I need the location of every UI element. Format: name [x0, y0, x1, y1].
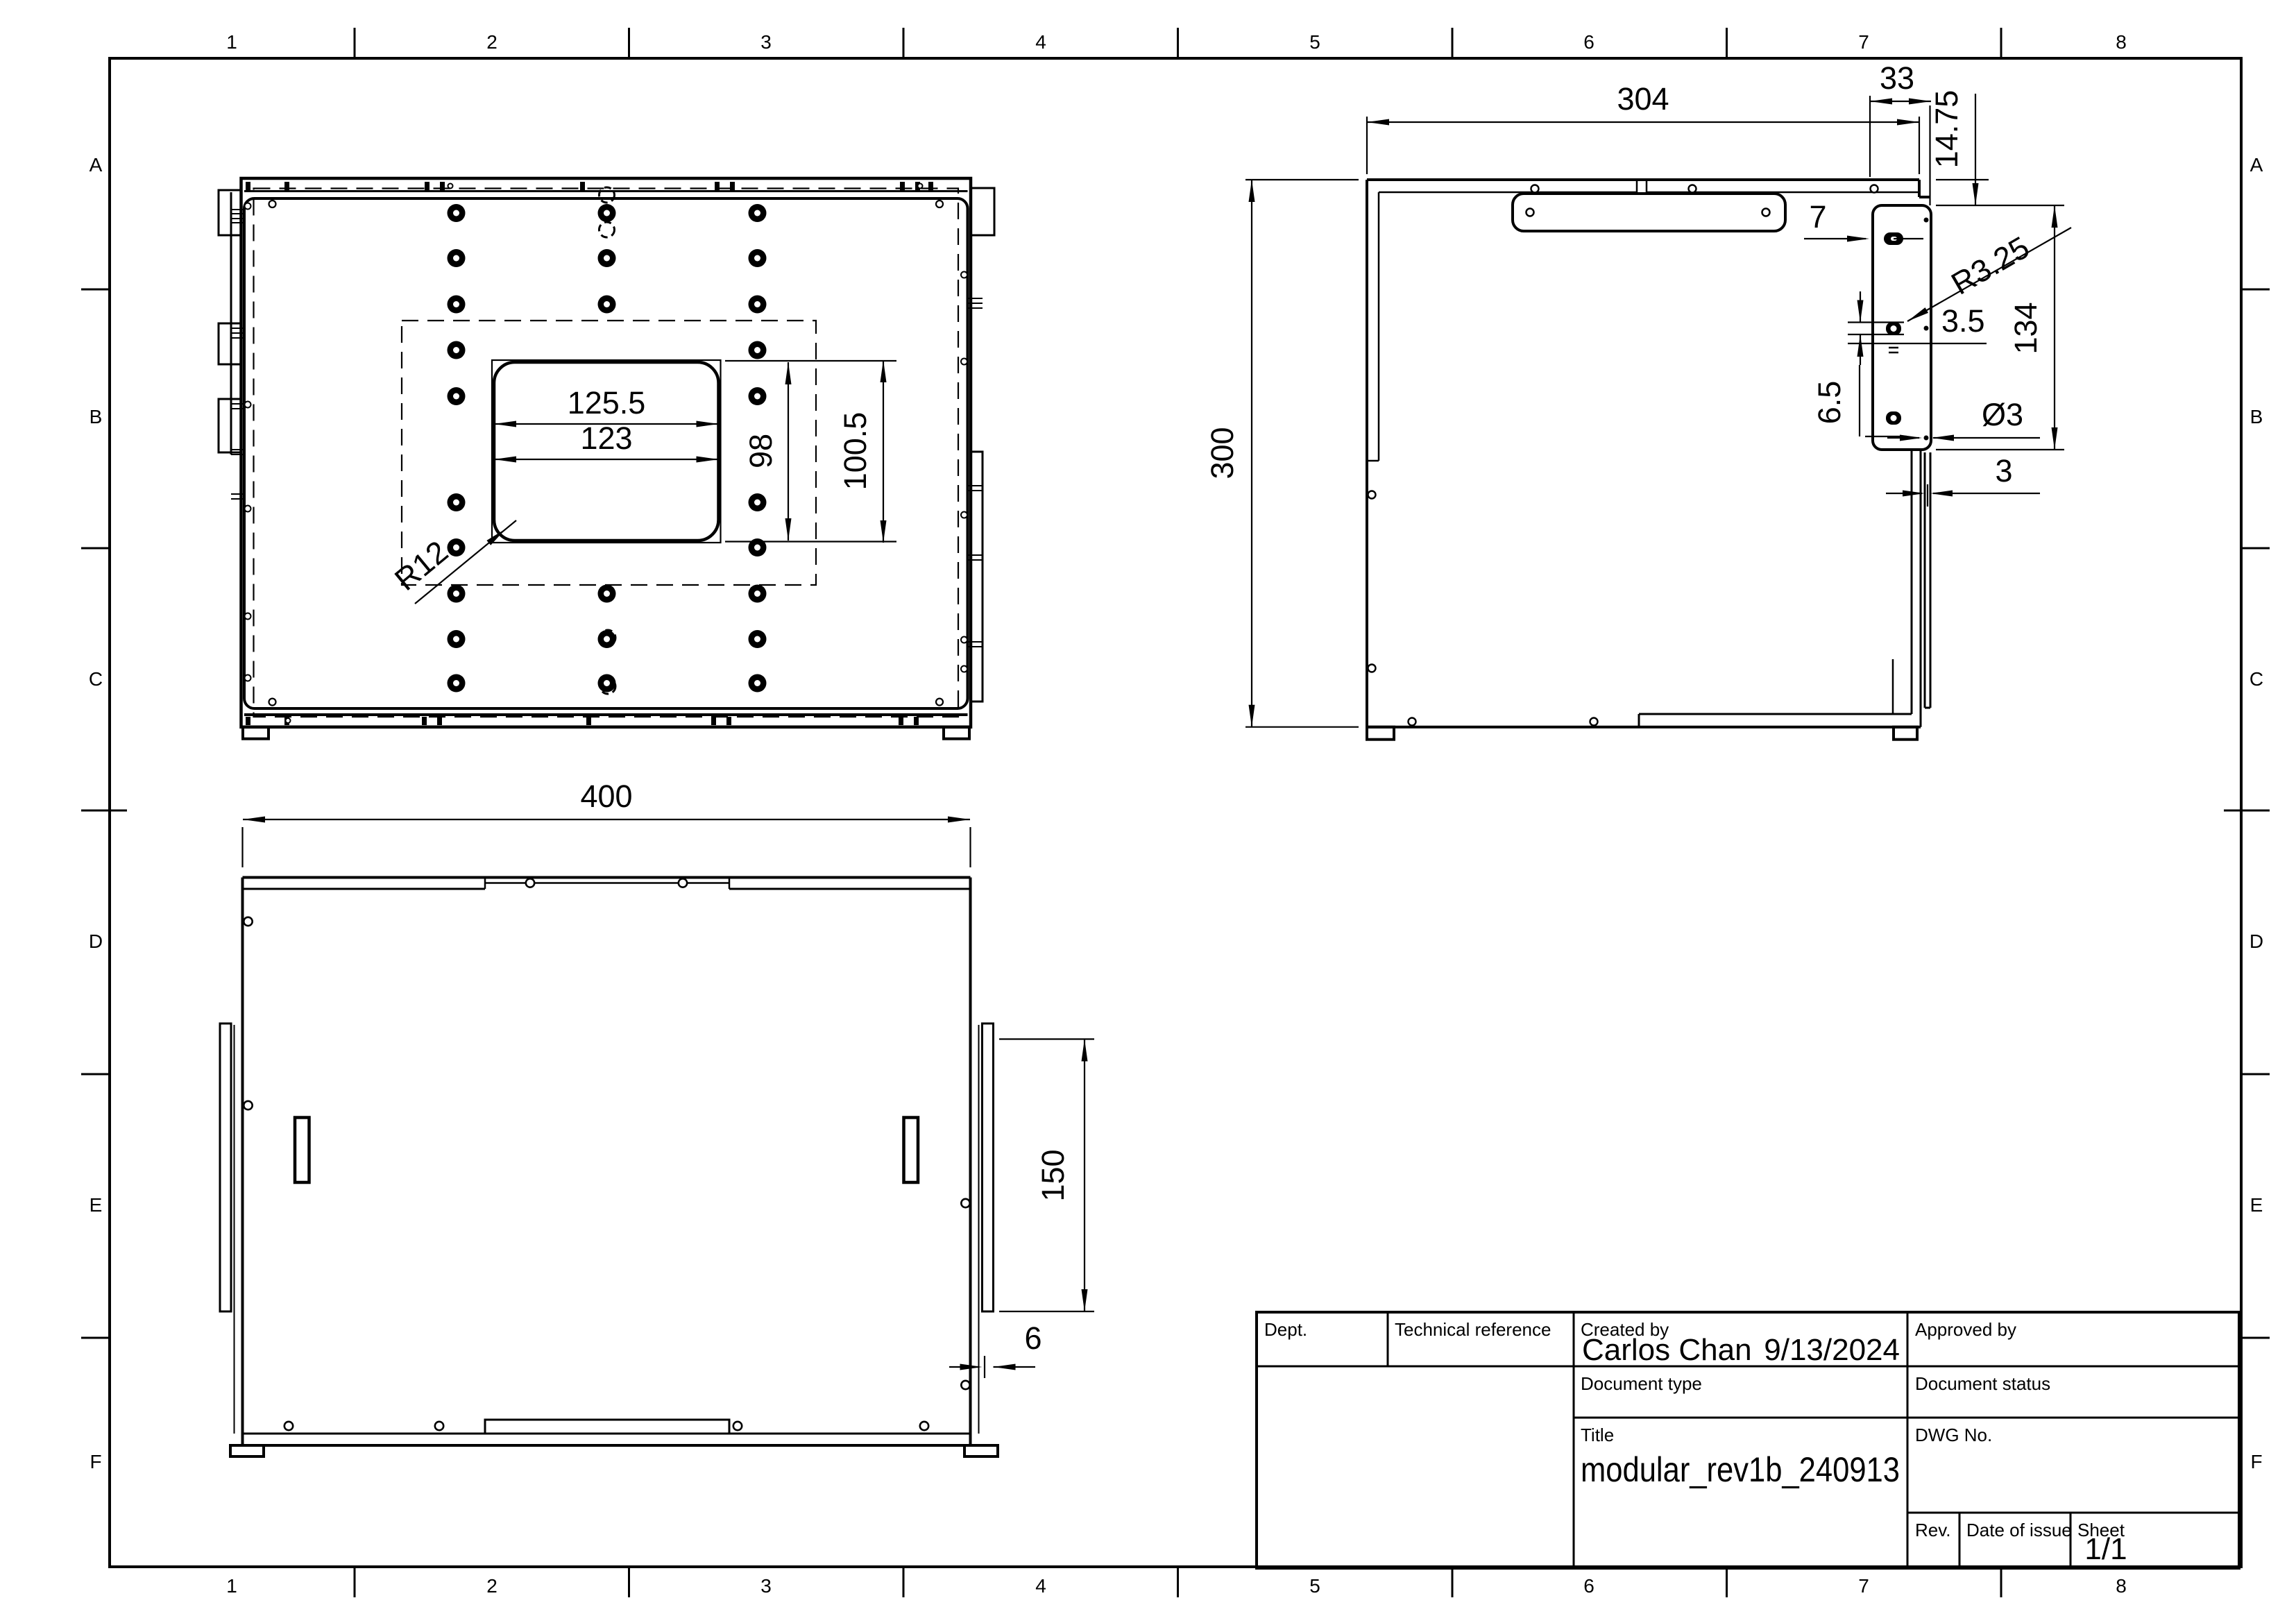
svg-text:4: 4: [1035, 31, 1046, 53]
svg-text:1: 1: [226, 1575, 237, 1597]
svg-text:304: 304: [1617, 81, 1669, 117]
svg-text:Document type: Document type: [1581, 1373, 1702, 1394]
svg-text:Title: Title: [1581, 1425, 1614, 1445]
svg-text:modular_rev1b_240913: modular_rev1b_240913: [1581, 1450, 1900, 1489]
svg-text:6.5: 6.5: [1812, 381, 1847, 425]
svg-text:Technical reference: Technical reference: [1395, 1319, 1551, 1340]
svg-text:B: B: [90, 406, 103, 427]
svg-text:150: 150: [1035, 1149, 1071, 1201]
svg-text:D: D: [2250, 931, 2263, 952]
svg-text:3: 3: [760, 31, 772, 53]
svg-text:14.75: 14.75: [1929, 90, 1964, 169]
svg-text:Rev.: Rev.: [1915, 1520, 1951, 1540]
svg-text:7: 7: [1858, 31, 1869, 53]
svg-text:C: C: [89, 668, 103, 690]
svg-text:5: 5: [1309, 31, 1320, 53]
svg-text:DWG No.: DWG No.: [1915, 1425, 1992, 1445]
svg-text:7: 7: [1858, 1575, 1869, 1597]
svg-text:Carlos Chan: Carlos Chan: [1582, 1333, 1752, 1367]
svg-text:E: E: [2250, 1194, 2263, 1216]
svg-text:400: 400: [580, 779, 632, 814]
svg-text:Approved by: Approved by: [1915, 1319, 2016, 1340]
svg-text:C: C: [2250, 668, 2263, 690]
svg-text:F: F: [2250, 1451, 2262, 1472]
svg-text:2: 2: [486, 31, 498, 53]
svg-text:B: B: [2250, 406, 2263, 427]
svg-text:100.5: 100.5: [837, 412, 873, 491]
svg-text:134: 134: [2008, 302, 2043, 354]
svg-text:A: A: [2250, 154, 2263, 176]
svg-text:4: 4: [1035, 1575, 1046, 1597]
svg-text:E: E: [90, 1194, 103, 1216]
svg-text:1: 1: [226, 31, 237, 53]
svg-text:1/1: 1/1: [2084, 1532, 2127, 1566]
svg-text:Ø3: Ø3: [1982, 397, 2023, 432]
svg-text:9/13/2024: 9/13/2024: [1764, 1333, 1900, 1367]
svg-text:300: 300: [1205, 427, 1240, 479]
svg-text:5: 5: [1309, 1575, 1320, 1597]
svg-text:98: 98: [743, 434, 779, 468]
svg-text:Document status: Document status: [1915, 1373, 2050, 1394]
svg-text:3.5: 3.5: [1941, 303, 1985, 339]
svg-text:F: F: [90, 1451, 101, 1472]
svg-text:3: 3: [1995, 453, 2012, 488]
svg-text:Date of issue: Date of issue: [1966, 1520, 2072, 1540]
svg-text:6: 6: [1024, 1320, 1041, 1356]
svg-text:6: 6: [1583, 31, 1595, 53]
svg-text:2: 2: [486, 1575, 498, 1597]
svg-text:33: 33: [1880, 60, 1914, 96]
svg-text:A: A: [90, 154, 103, 176]
svg-text:D: D: [89, 931, 103, 952]
svg-text:8: 8: [2116, 31, 2127, 53]
svg-text:6: 6: [1583, 1575, 1595, 1597]
svg-text:Dept.: Dept.: [1264, 1319, 1307, 1340]
svg-text:7: 7: [1809, 199, 1826, 235]
svg-text:8: 8: [2116, 1575, 2127, 1597]
svg-text:3: 3: [760, 1575, 772, 1597]
svg-text:123: 123: [580, 420, 632, 456]
svg-text:125.5: 125.5: [568, 385, 646, 420]
